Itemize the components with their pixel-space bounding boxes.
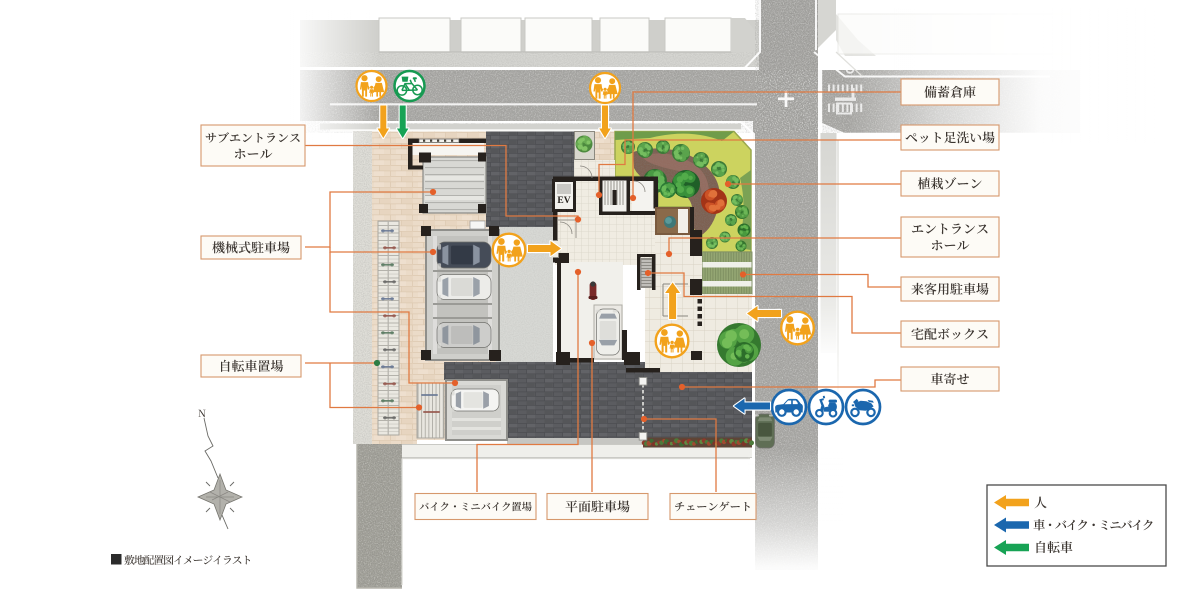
svg-text:EV: EV — [557, 196, 570, 206]
